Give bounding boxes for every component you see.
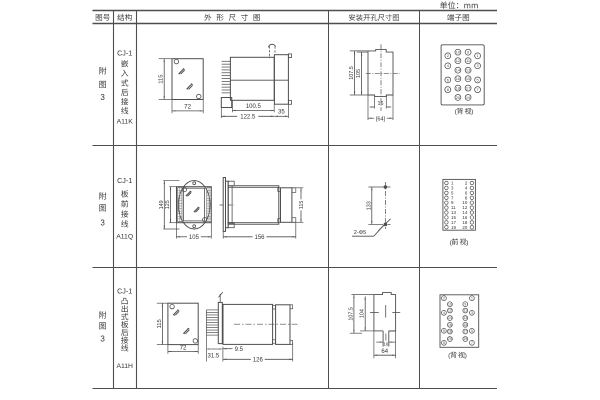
svg-text:10: 10	[448, 302, 452, 306]
svg-text:105: 105	[189, 235, 200, 241]
svg-text:CJ-1: CJ-1	[117, 286, 132, 295]
svg-text:7: 7	[471, 341, 473, 345]
svg-text:115: 115	[157, 319, 163, 328]
svg-text:19: 19	[463, 337, 467, 341]
svg-text:133: 133	[366, 201, 372, 210]
svg-text:11: 11	[464, 309, 468, 313]
svg-text:9.5: 9.5	[235, 347, 244, 353]
svg-text:1: 1	[471, 296, 473, 300]
svg-text:): )	[466, 239, 468, 246]
svg-text:19: 19	[451, 225, 456, 230]
svg-text:13: 13	[463, 316, 467, 320]
svg-text:8: 8	[447, 87, 449, 92]
svg-text:126: 126	[253, 357, 264, 363]
svg-text:35: 35	[278, 110, 285, 116]
svg-text:149: 149	[159, 200, 165, 209]
svg-text:A11H: A11H	[116, 363, 133, 370]
svg-text:8: 8	[443, 341, 445, 345]
svg-text:104: 104	[360, 309, 366, 318]
svg-text:12: 12	[448, 309, 452, 313]
svg-text:156: 156	[254, 235, 265, 241]
svg-text:4: 4	[443, 311, 445, 315]
svg-text:2-Φ5: 2-Φ5	[354, 230, 367, 236]
svg-text:3: 3	[100, 218, 105, 227]
svg-text:17: 17	[463, 330, 467, 334]
svg-text:105: 105	[356, 69, 362, 78]
svg-text:9: 9	[467, 50, 469, 55]
svg-text:20: 20	[448, 337, 452, 341]
svg-text:3: 3	[100, 335, 105, 344]
svg-text:16: 16	[383, 342, 388, 347]
svg-text:5: 5	[471, 329, 473, 333]
svg-text:31.5: 31.5	[208, 353, 220, 359]
svg-text:107.5: 107.5	[348, 307, 354, 321]
svg-text:12: 12	[456, 58, 460, 63]
svg-text:16: 16	[456, 76, 460, 81]
svg-text:16: 16	[448, 323, 452, 327]
svg-text:72: 72	[180, 344, 187, 351]
svg-text:72: 72	[184, 104, 191, 111]
svg-text:A11Q: A11Q	[116, 233, 133, 240]
svg-text:13: 13	[466, 68, 470, 73]
svg-text:19: 19	[466, 95, 470, 100]
svg-text:15: 15	[463, 323, 467, 327]
svg-text:15: 15	[466, 76, 470, 81]
svg-text:14: 14	[448, 316, 452, 320]
svg-text:2: 2	[447, 53, 449, 58]
svg-text:2: 2	[443, 296, 445, 300]
svg-text:9: 9	[464, 302, 466, 306]
svg-text:122.5: 122.5	[240, 114, 256, 120]
svg-text:3: 3	[471, 311, 473, 315]
svg-text:18: 18	[448, 330, 452, 334]
svg-text:16: 16	[378, 101, 384, 107]
svg-text:3: 3	[477, 63, 479, 68]
svg-text:100.5: 100.5	[246, 104, 262, 110]
svg-text:125: 125	[165, 200, 171, 209]
svg-text:CJ-1: CJ-1	[117, 48, 132, 57]
svg-text:5: 5	[477, 77, 479, 82]
svg-text:[64]: [64]	[376, 116, 386, 122]
svg-text:CJ-1: CJ-1	[117, 176, 132, 185]
svg-text:): )	[471, 109, 473, 116]
svg-text:17: 17	[466, 86, 470, 91]
svg-text:): )	[465, 353, 467, 360]
svg-text:6: 6	[443, 329, 445, 333]
svg-text:3: 3	[100, 93, 105, 102]
svg-text:18: 18	[456, 86, 460, 91]
svg-text:1: 1	[477, 53, 479, 58]
svg-text:20: 20	[462, 225, 467, 230]
svg-text:7: 7	[477, 87, 479, 92]
svg-text:64: 64	[381, 349, 388, 355]
svg-text:115: 115	[159, 74, 165, 83]
svg-text:107.5: 107.5	[349, 66, 355, 80]
svg-text:115: 115	[299, 201, 305, 210]
svg-text:11: 11	[466, 58, 470, 63]
svg-text:6: 6	[447, 77, 449, 82]
svg-text:A11K: A11K	[117, 119, 134, 126]
